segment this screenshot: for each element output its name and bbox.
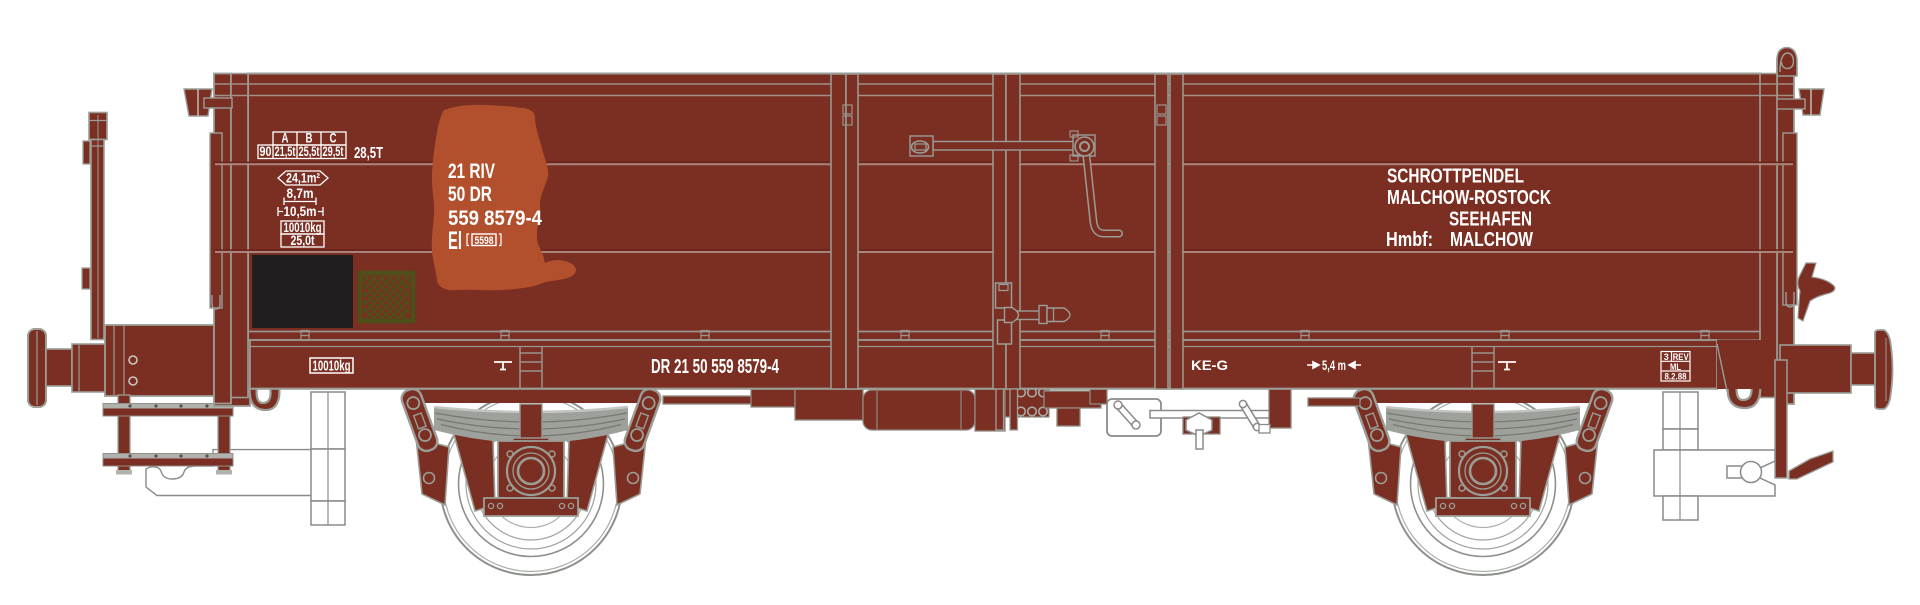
svg-text:MALCHOW-ROSTOCK: MALCHOW-ROSTOCK [1387, 187, 1551, 209]
svg-text:5598: 5598 [475, 235, 494, 247]
svg-text:5,4 m: 5,4 m [1322, 358, 1346, 373]
svg-text:El: El [448, 227, 462, 255]
svg-text:21 RIV: 21 RIV [448, 159, 495, 183]
svg-text:DR 21 50 559 8579-4: DR 21 50 559 8579-4 [651, 355, 779, 378]
svg-text:21,5t: 21,5t [275, 144, 296, 159]
svg-text:24,1m²: 24,1m² [286, 171, 320, 186]
svg-text:29,5t: 29,5t [323, 144, 344, 159]
svg-text:Hmbf:: Hmbf: [1386, 229, 1433, 251]
svg-text:10010kg: 10010kg [313, 359, 351, 375]
svg-text:SEEHAFEN: SEEHAFEN [1449, 209, 1532, 231]
svg-text:8.2.88: 8.2.88 [1665, 372, 1687, 383]
svg-text:8,7m: 8,7m [287, 186, 314, 201]
svg-text:SCHROTTPENDEL: SCHROTTPENDEL [1387, 166, 1524, 188]
svg-text:25,0t: 25,0t [291, 233, 315, 248]
svg-text:KE-G: KE-G [1191, 358, 1228, 373]
svg-text:559 8579-4: 559 8579-4 [448, 206, 542, 230]
svg-text:3: 3 [1664, 352, 1669, 363]
svg-text:25,5t: 25,5t [299, 144, 320, 159]
svg-text:50 DR: 50 DR [448, 182, 492, 206]
svg-text:MALCHOW: MALCHOW [1450, 229, 1533, 251]
svg-text:90: 90 [260, 144, 272, 159]
svg-text:28,5T: 28,5T [354, 145, 383, 162]
svg-text:10,5m: 10,5m [284, 204, 317, 219]
